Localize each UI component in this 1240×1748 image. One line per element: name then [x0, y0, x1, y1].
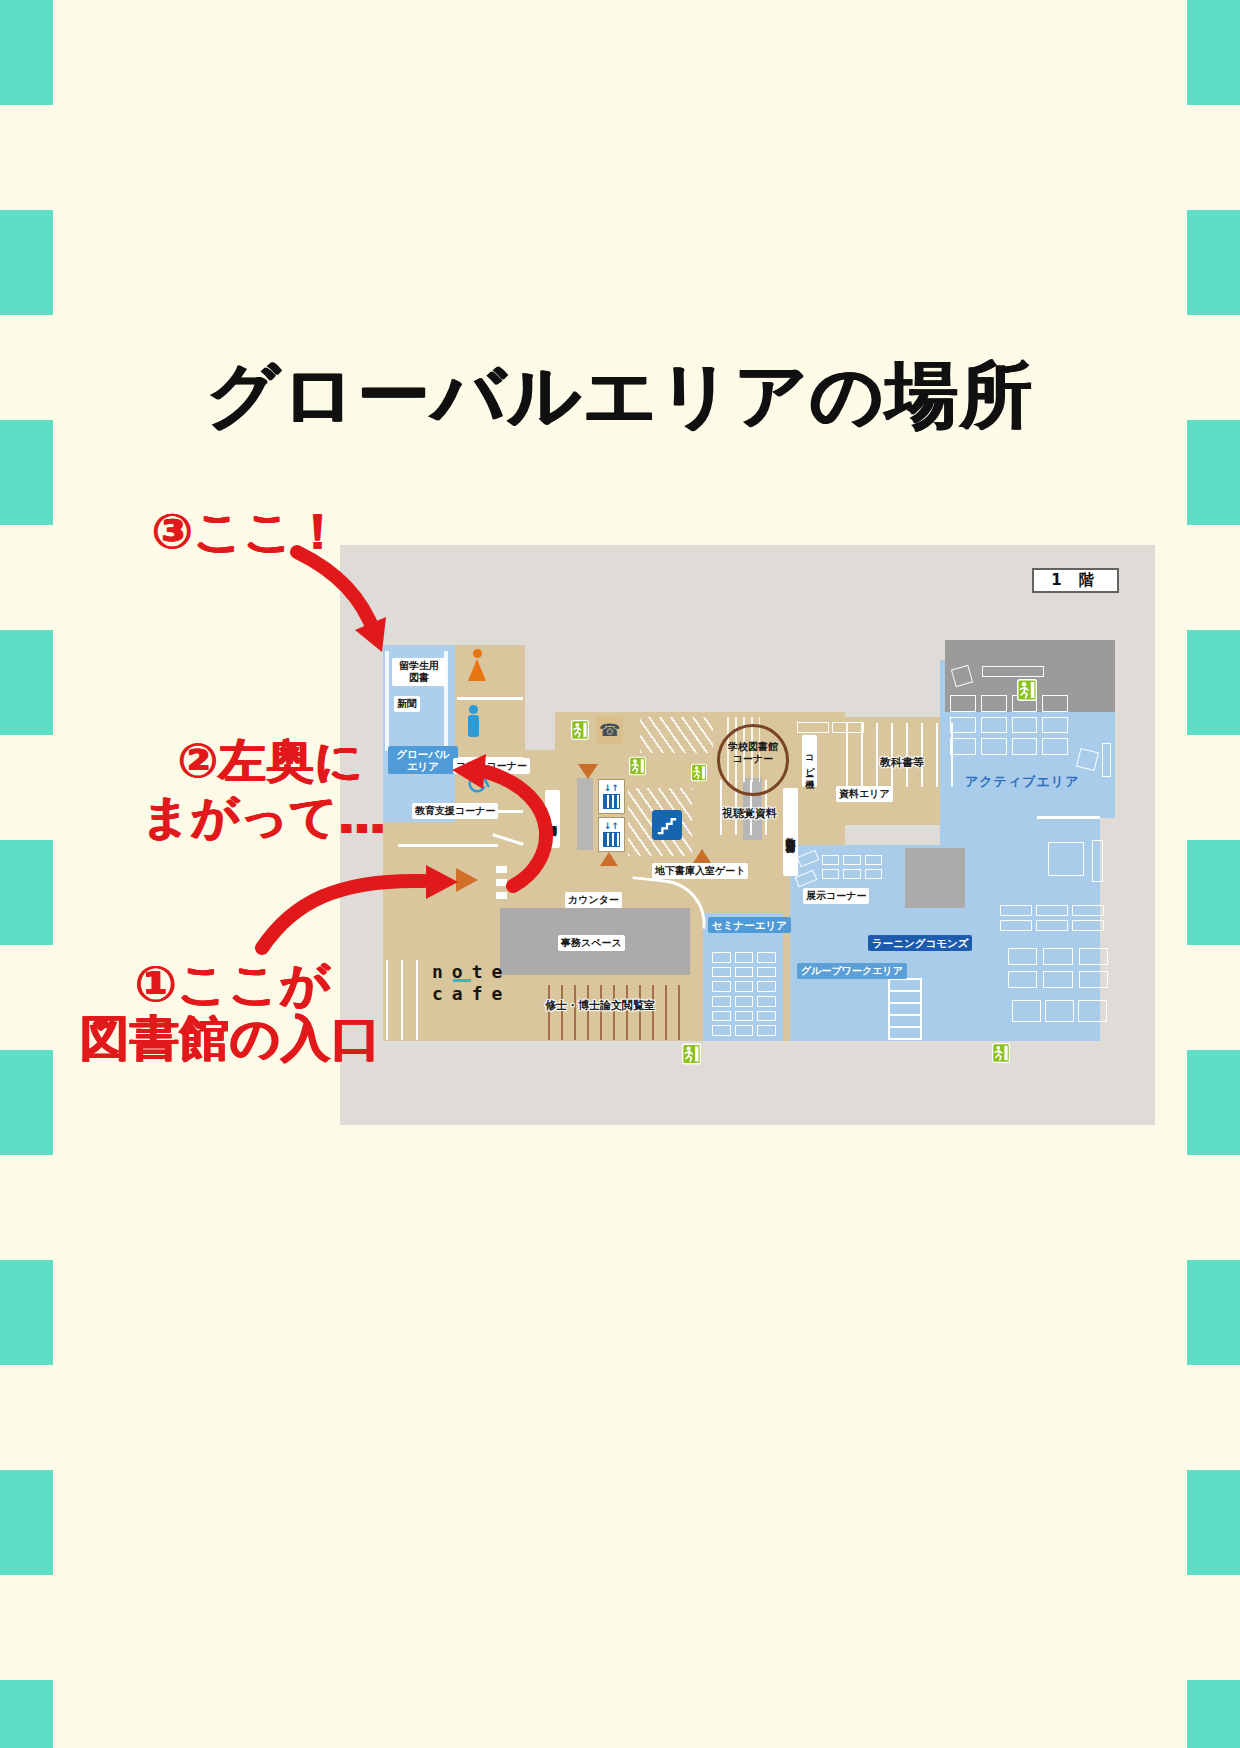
active-area-tables: [950, 695, 1068, 755]
label-textbooks: 教科書等: [880, 755, 924, 770]
phone-icon: ☎: [596, 716, 623, 744]
wall-line: [385, 651, 389, 751]
label-audiovisual: 視聴覚資料: [722, 806, 777, 821]
label-education-support: 教育支援コーナー: [412, 803, 498, 819]
annotation-step2-line1: ②左奥に: [178, 730, 364, 793]
stairs-icon: [652, 810, 682, 840]
exit-sign-icon: [992, 1043, 1010, 1063]
floor-tag: 1 階: [1032, 568, 1119, 593]
label-new-arrivals: 新着図書: [545, 790, 560, 848]
commons-divider: [1037, 816, 1100, 819]
commons-tables: [1000, 905, 1104, 931]
elevator-icon: ↓↑: [598, 817, 625, 852]
copier-units: [832, 722, 864, 733]
copier-units: [797, 722, 829, 733]
annotation-step1-line2: 図書館の入口: [80, 1006, 381, 1072]
entrance-triangle-icon: [456, 868, 478, 892]
side-table: [1102, 743, 1111, 777]
seminar-chairs: [712, 952, 776, 1036]
note-cafe-logo-line2: cafe: [432, 985, 511, 1003]
label-materials-area: 資料エリア: [836, 786, 893, 802]
label-seminar-area: セミナーエリア: [708, 917, 791, 933]
label-copy-machine: コピー機: [802, 735, 817, 787]
commons-tables: [1008, 948, 1108, 988]
label-groupwork-area: グループワークエリア: [797, 963, 907, 979]
gate-dash: [496, 866, 507, 873]
label-exhibit-corner: 展示コーナー: [803, 888, 869, 904]
side-board: [1092, 840, 1103, 882]
label-active-area: アクティブエリア: [965, 773, 1079, 791]
commons-gray-block: [905, 848, 965, 908]
note-cafe-underline: [453, 979, 471, 982]
exit-sign-icon: [571, 717, 589, 743]
exit-sign-icon: [691, 760, 707, 785]
down-triangle-icon: [578, 764, 598, 779]
walkway-hatch: [640, 717, 713, 753]
label-teaching-practice-books: 教育実習用図書: [783, 788, 798, 876]
left-border-pattern: [0, 0, 53, 1748]
pillar: [577, 778, 593, 850]
wall-line: [457, 697, 523, 700]
page-title: グローバルエリアの場所: [0, 348, 1240, 444]
lobby-shelves: [386, 960, 420, 1040]
exit-sign-icon: [629, 753, 646, 779]
label-copy-corner: コピーコーナー: [453, 758, 530, 774]
woman-toilet-icon: [468, 649, 486, 681]
gate-dash: [496, 892, 507, 899]
note-cafe-logo-line1: note: [432, 963, 511, 981]
label-thesis-room: 修士・博士論文閲覧室: [545, 998, 655, 1013]
label-learning-commons: ラーニングコモンズ: [868, 935, 972, 951]
up-triangle-icon: [600, 852, 618, 866]
floor-map: 1 階: [340, 545, 1155, 1125]
annotation-step2-line2: まがって…: [142, 786, 386, 849]
label-school-library-corner: 学校図書館 コーナー: [720, 739, 786, 767]
commons-stairs: [888, 978, 922, 1040]
label-basement-gate: 地下書庫入室ゲート: [652, 863, 748, 879]
entrance-line: [398, 844, 498, 847]
label-counter: カウンター: [565, 892, 622, 908]
exit-sign-icon: [1017, 677, 1037, 703]
commons-tables: [1012, 1000, 1107, 1022]
big-square-table: [1048, 842, 1084, 876]
long-table: [982, 666, 1044, 677]
exhibit-benches: [822, 855, 882, 879]
label-international-books: 留学生用 図書: [392, 658, 446, 686]
exit-sign-icon: [682, 1043, 701, 1065]
right-border-pattern: [1187, 0, 1240, 1748]
label-office-space: 事務スペース: [558, 935, 625, 951]
label-newspaper: 新聞: [394, 696, 420, 712]
annotation-step3: ③ここ！: [152, 500, 343, 564]
label-global-area: グローバル エリア: [388, 746, 458, 774]
man-toilet-icon: [468, 705, 479, 737]
elevator-icon: ↓↑: [598, 779, 625, 814]
up-triangle-icon: [693, 849, 711, 863]
gate-dash: [496, 879, 507, 886]
